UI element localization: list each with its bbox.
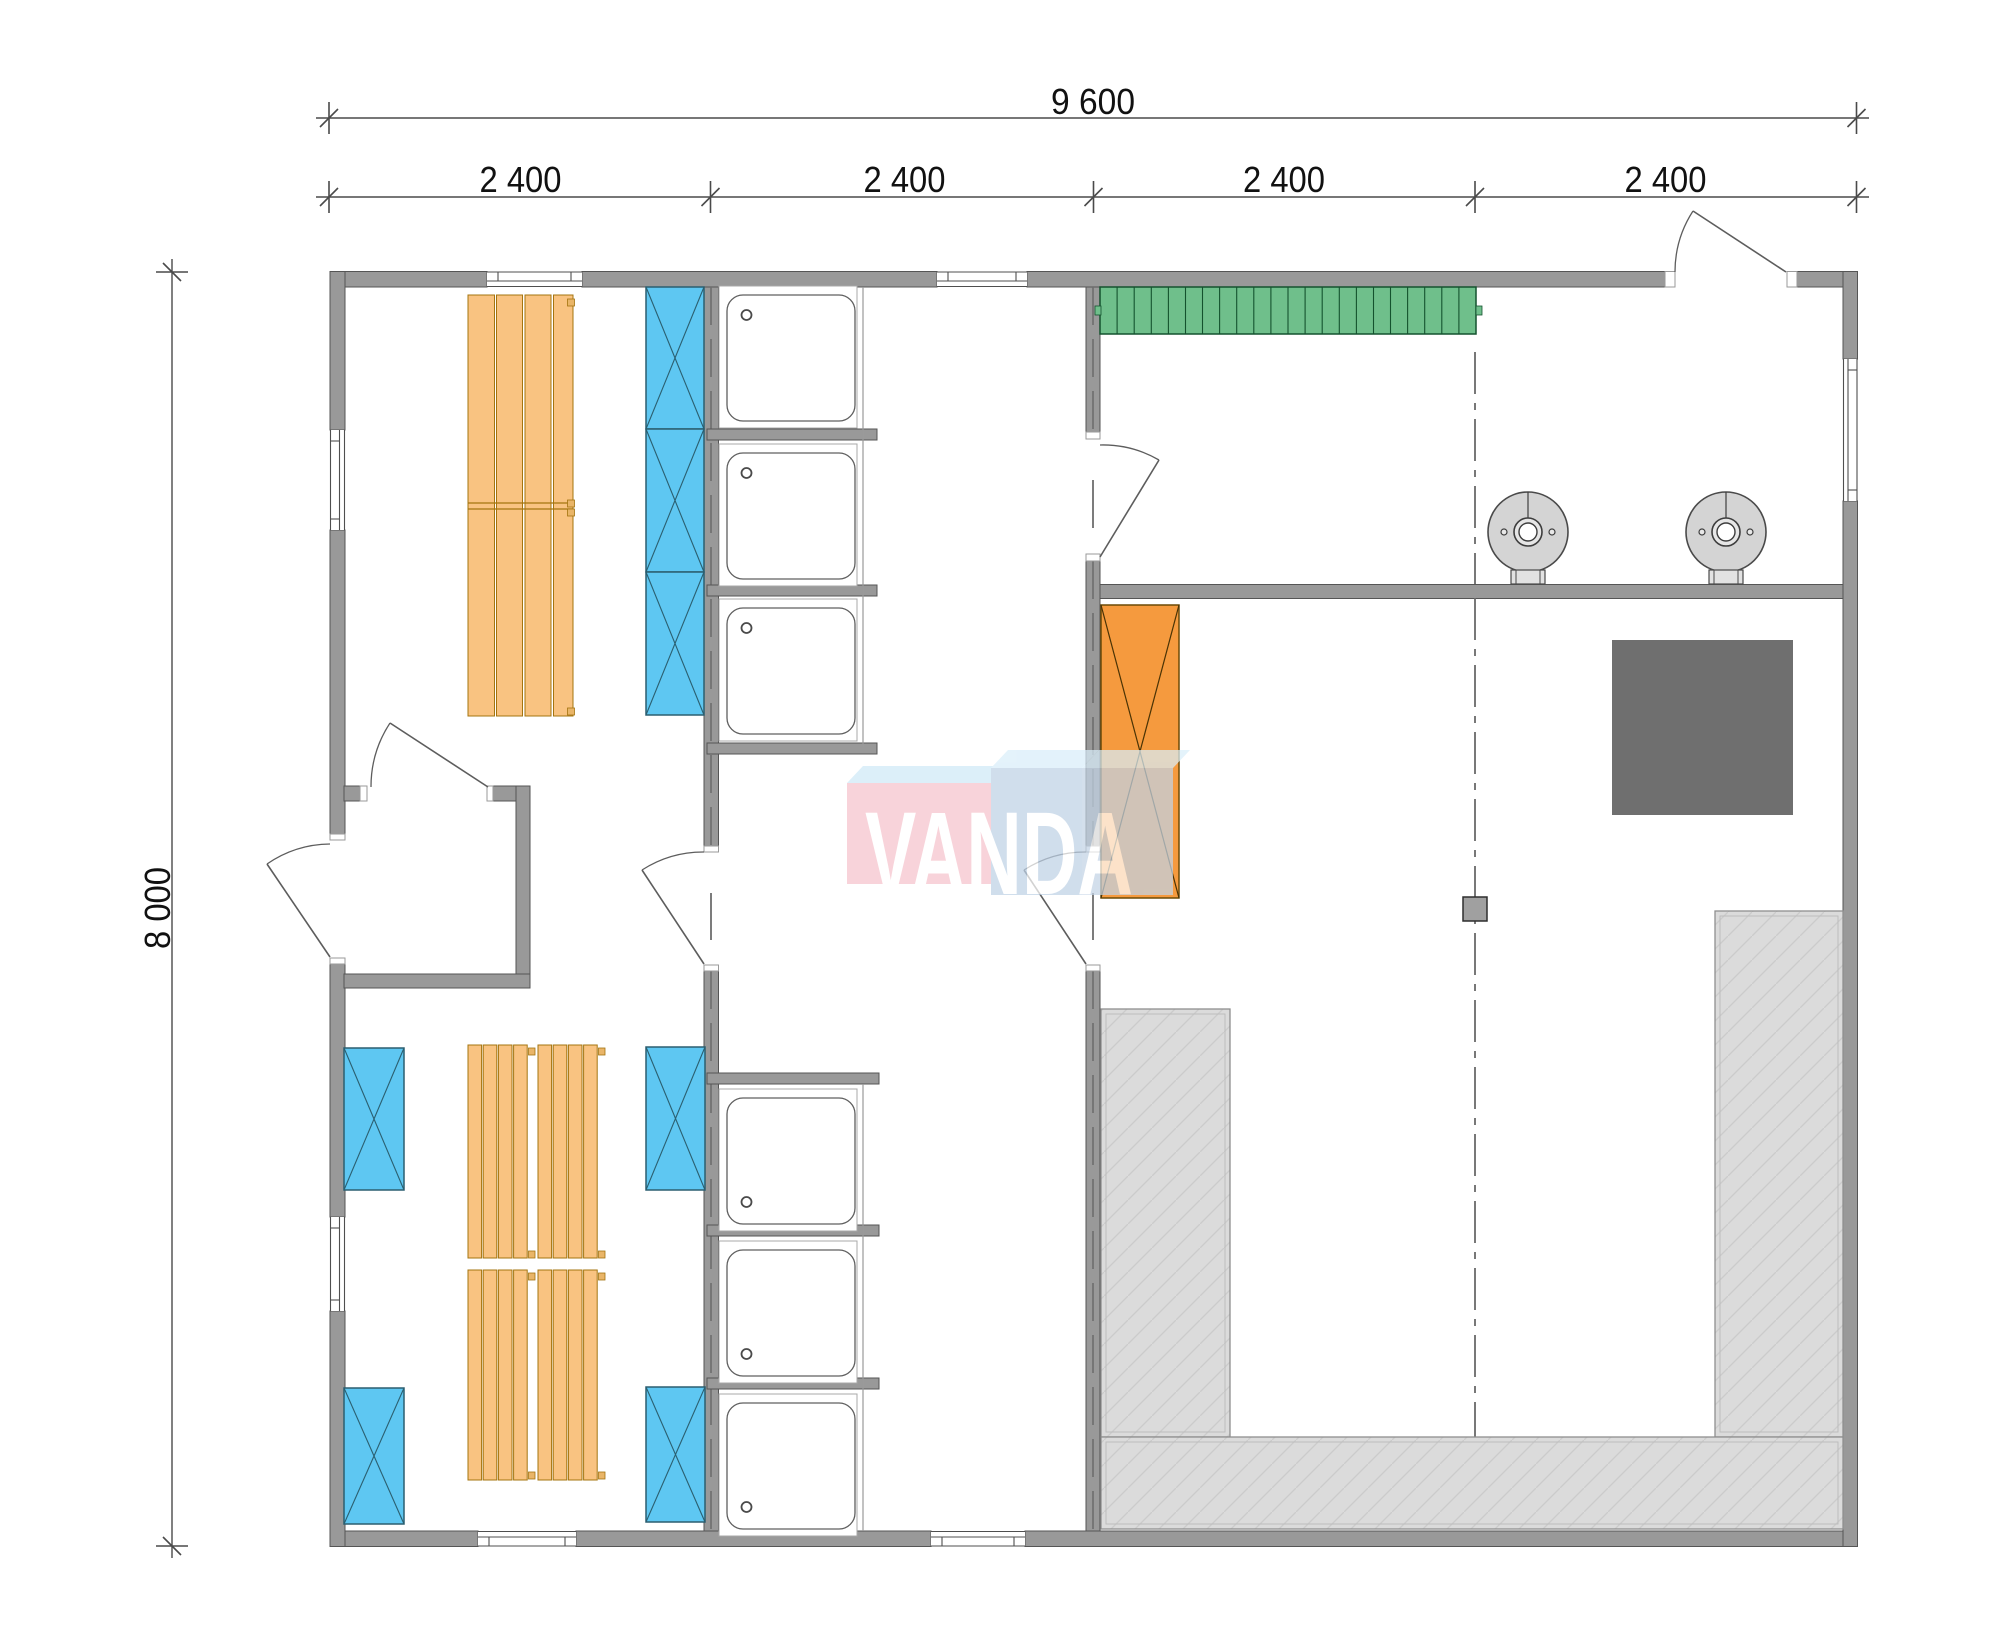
svg-text:9 600: 9 600 bbox=[1051, 81, 1135, 122]
svg-text:VANDA: VANDA bbox=[865, 788, 1133, 920]
svg-text:2 400: 2 400 bbox=[864, 159, 946, 200]
svg-text:2 400: 2 400 bbox=[1243, 159, 1325, 200]
svg-text:2 400: 2 400 bbox=[480, 159, 562, 200]
svg-text:8 000: 8 000 bbox=[137, 867, 178, 949]
svg-text:2 400: 2 400 bbox=[1625, 159, 1707, 200]
